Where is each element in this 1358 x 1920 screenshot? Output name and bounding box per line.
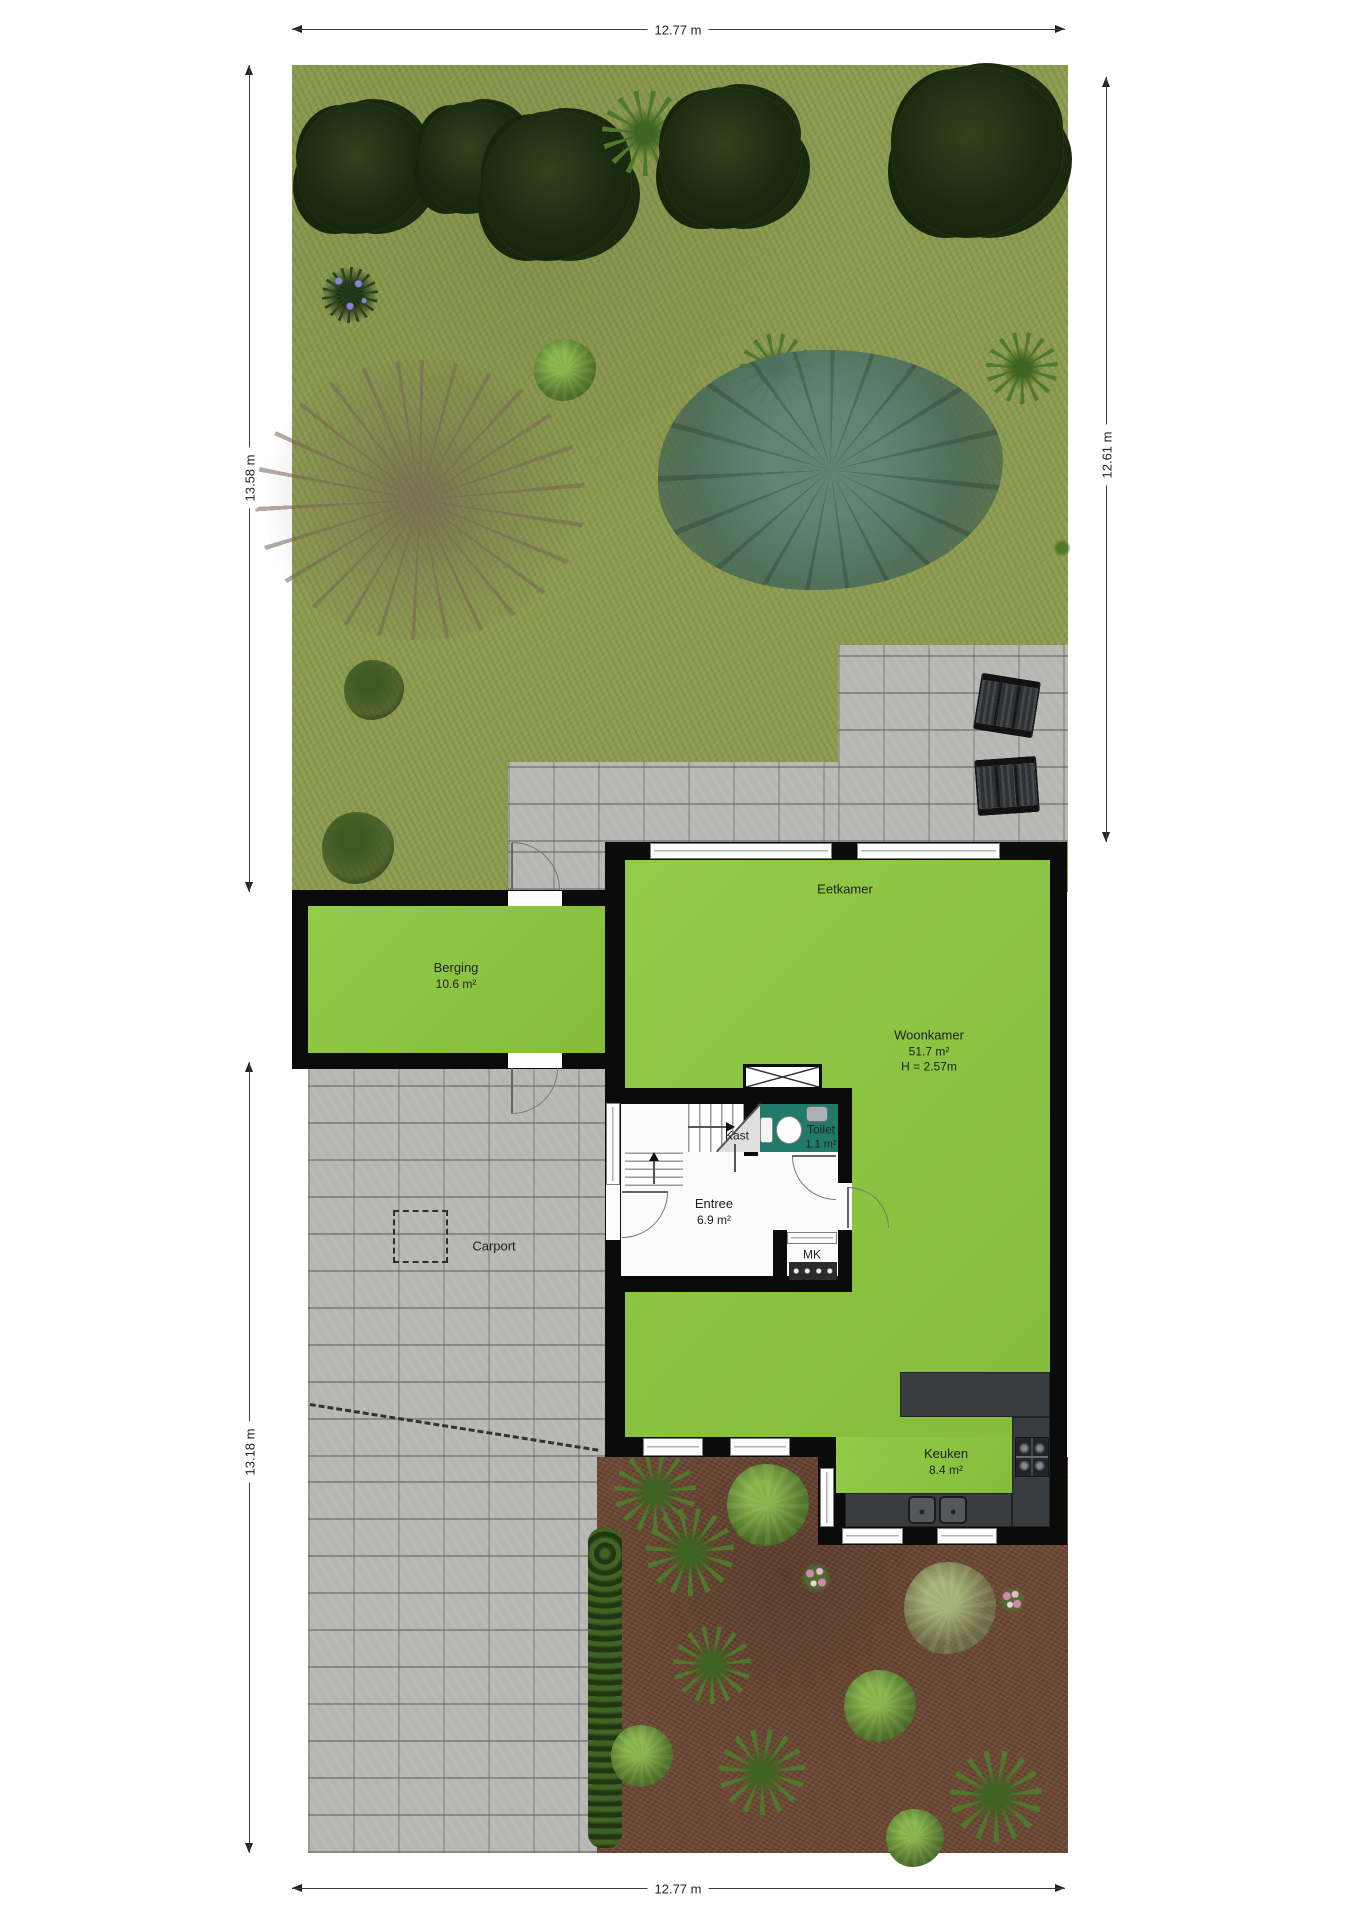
patio-chair — [974, 756, 1040, 816]
plant-bare-tree — [255, 360, 585, 640]
room-area: 10.6 m² — [434, 977, 479, 992]
plant-palm — [719, 1729, 805, 1815]
room-name: Entree — [695, 1196, 733, 1213]
kitchen-sink — [939, 1496, 967, 1524]
carport-pavers-lower — [308, 1457, 597, 1853]
cooktop — [1015, 1437, 1049, 1477]
plant-bush — [886, 1809, 944, 1867]
door-leaf — [511, 843, 513, 890]
toilet-sink — [806, 1106, 828, 1122]
stair-direction-line — [688, 1126, 726, 1128]
window — [650, 843, 832, 859]
kitchen-sink — [908, 1496, 936, 1524]
window — [842, 1528, 903, 1544]
stair-direction-arrow — [649, 1152, 659, 1161]
window — [730, 1438, 790, 1456]
berging-door-opening — [508, 891, 562, 906]
plant-sprig — [1053, 539, 1071, 557]
eetkamer-label: Eetkamer — [817, 882, 873, 899]
plant-flowers — [999, 1587, 1025, 1613]
toilet-bowl — [776, 1116, 802, 1144]
carport-label: Carport — [472, 1239, 515, 1256]
toilet-label: Toilet 1.1 m² — [805, 1122, 836, 1151]
plant-palm — [673, 1626, 751, 1704]
dimension-label-right: 12.61 m — [1100, 425, 1115, 486]
plant-spiky — [322, 267, 378, 323]
dimension-label-top: 12.77 m — [648, 23, 709, 38]
room-name: MK — [803, 1247, 821, 1262]
room-area: 8.4 m² — [924, 1463, 968, 1478]
patio-pavers — [838, 645, 1068, 842]
room-name: Kast — [725, 1128, 749, 1143]
window — [820, 1468, 834, 1527]
door-leaf — [511, 1068, 513, 1114]
plant-flowers — [801, 1563, 831, 1593]
berging-door-opening — [508, 1053, 562, 1068]
patio-chair — [973, 672, 1041, 738]
window — [857, 843, 1000, 859]
kast-leader-line — [734, 1144, 736, 1172]
window — [643, 1438, 703, 1456]
room-name: Keuken — [924, 1446, 968, 1463]
room-name: Eetkamer — [817, 882, 873, 899]
plant-palm — [646, 1508, 734, 1596]
dimension-label-left-upper: 13.58 m — [243, 448, 258, 509]
hedge — [588, 1528, 622, 1848]
entree-label: Entree 6.9 m² — [695, 1196, 733, 1228]
dimension-label-left-lower: 13.18 m — [243, 1422, 258, 1483]
room-ceiling-height: H = 2.57m — [894, 1059, 964, 1074]
room-name: Berging — [434, 960, 479, 977]
room-name: Carport — [472, 1239, 515, 1256]
room-area: 6.9 m² — [695, 1213, 733, 1228]
entree-wall-top — [605, 1088, 852, 1104]
dimension-label-bottom: 12.77 m — [648, 1882, 709, 1897]
kitchen-counter-top — [900, 1372, 1050, 1417]
door-leaf — [792, 1155, 836, 1157]
front-door-opening — [606, 1185, 620, 1240]
front-sidelight-window — [606, 1103, 620, 1185]
keuken-label: Keuken 8.4 m² — [924, 1446, 968, 1478]
woonkamer-label: Woonkamer 51.7 m² H = 2.57m — [894, 1027, 964, 1074]
door-leaf — [847, 1187, 849, 1228]
door-leaf — [622, 1191, 668, 1193]
room-area: 1.1 m² — [805, 1138, 836, 1152]
stair-direction-line — [653, 1160, 655, 1184]
room-name: Woonkamer — [894, 1027, 964, 1044]
patio-path — [508, 762, 838, 842]
plant-palm — [986, 332, 1058, 404]
window — [937, 1528, 997, 1544]
rear-wall-left — [605, 1437, 836, 1457]
carport-pavers-upper — [308, 1069, 605, 1457]
room-name: Toilet — [805, 1122, 836, 1137]
meter-cabinet — [789, 1262, 837, 1280]
shaft-x-icon — [746, 1067, 819, 1087]
mk-threshold — [787, 1232, 837, 1244]
duct-shaft — [743, 1064, 822, 1090]
floorplan-page: Berging 10.6 m² Eetkamer Woonkamer 51.7 … — [0, 0, 1358, 1920]
mk-label: MK — [803, 1247, 821, 1262]
berging-label: Berging 10.6 m² — [434, 960, 479, 992]
kast-label: Kast — [725, 1128, 749, 1143]
plant-palm — [950, 1750, 1042, 1842]
mk-wall — [773, 1230, 787, 1276]
carport-post-marker — [393, 1210, 448, 1263]
room-area: 51.7 m² — [894, 1044, 964, 1059]
toilet-cistern — [760, 1117, 773, 1143]
